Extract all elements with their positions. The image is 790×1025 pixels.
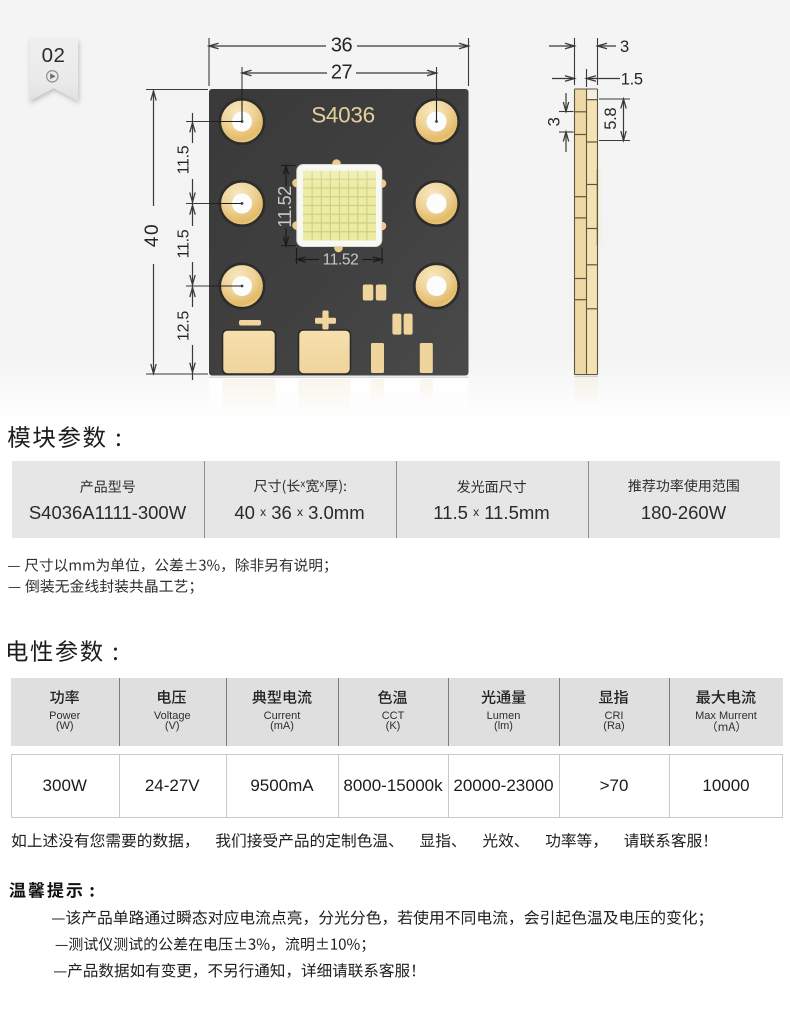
- svg-text:11.5: 11.5: [176, 145, 193, 174]
- svg-text:11.5: 11.5: [176, 229, 193, 258]
- svg-text:11.52: 11.52: [323, 252, 359, 269]
- svg-text:S4036: S4036: [311, 103, 375, 128]
- svg-text:27: 27: [331, 62, 353, 84]
- svg-text:12.5: 12.5: [176, 311, 193, 341]
- svg-text:11.52: 11.52: [275, 186, 295, 228]
- svg-text:5.8: 5.8: [602, 108, 620, 130]
- svg-text:3: 3: [620, 38, 629, 56]
- svg-text:40: 40: [142, 223, 163, 247]
- svg-text:1.5: 1.5: [621, 71, 643, 89]
- svg-text:36: 36: [331, 35, 353, 57]
- svg-text:3: 3: [546, 117, 564, 126]
